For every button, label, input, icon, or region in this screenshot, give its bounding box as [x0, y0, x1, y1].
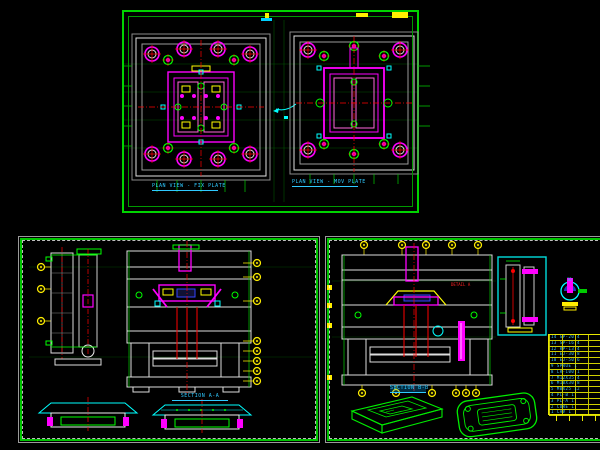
detail-box-view [498, 257, 546, 335]
table-leg [582, 414, 583, 421]
component-3d-detail [561, 278, 587, 310]
part-elevation-right [153, 399, 251, 433]
section-a-label: SECTION A-A [172, 393, 228, 401]
iso-detail-label: 3D [567, 277, 572, 282]
balloon-callouts-right [243, 260, 261, 385]
main-cross-section-view-b [327, 242, 492, 397]
section-b-label: SECTION B-B [390, 385, 426, 393]
bottom-left-sheet-border [18, 236, 320, 443]
revision-marker-icon [356, 13, 368, 17]
cad-drawing-canvas: PLAN VIEW - FIX PLATE PLAN VIEW - MOV PL… [0, 0, 600, 450]
isometric-part-top [352, 397, 442, 433]
cyan-leader-arrow [273, 104, 296, 119]
fixed-half-view-label: PLAN VIEW - FIX PLATE [152, 183, 218, 191]
section-views-drawing [19, 237, 319, 442]
isometric-part-bottom [456, 392, 538, 439]
side-section-view [38, 247, 102, 365]
plan-view-moving-half [290, 32, 430, 184]
table-leg [556, 414, 557, 421]
table-leg [595, 414, 596, 421]
table-leg [569, 414, 570, 421]
moving-half-view-label: PLAN VIEW - MOV PLATE [292, 179, 358, 187]
top-sheet-drawing [124, 12, 417, 211]
plan-view-fixed-half [124, 34, 270, 192]
main-cross-section-view [127, 241, 261, 395]
balloon-callouts-top [361, 242, 482, 256]
part-elevation-left [39, 397, 137, 431]
parts-list-table: 14 GP-20 4 13 SP-16 4 12 RP-13 4 11 EJ-3… [548, 334, 600, 415]
north-marker-base-icon [261, 18, 272, 21]
title-marker-icon [392, 12, 408, 18]
edge-tags-left [327, 285, 332, 380]
detail-a-label: DETAIL A [451, 282, 470, 287]
